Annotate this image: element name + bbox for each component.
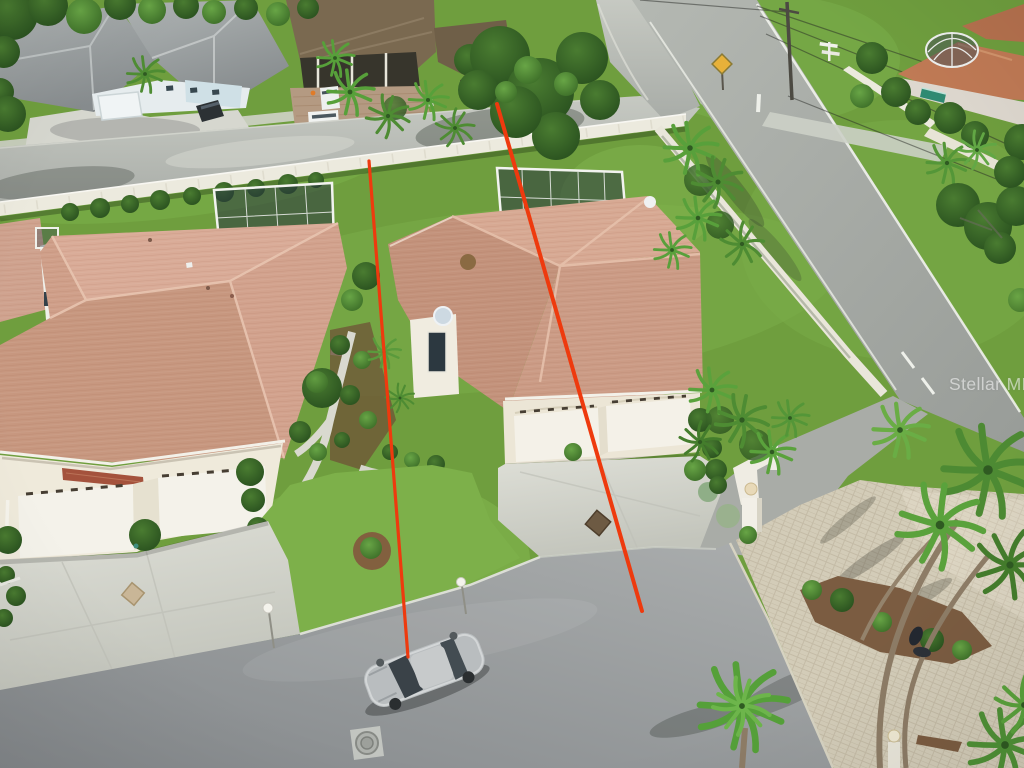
manhole-cover: [350, 726, 384, 760]
stellar-mls-watermark: Stellar MLS: [949, 374, 1024, 395]
white-van: [320, 86, 340, 110]
lamp-globe: [457, 578, 466, 587]
aerial-photo: Stellar MLS: [0, 0, 1024, 768]
monument-lamp: [745, 483, 757, 495]
screen-dome-enclosure: [926, 33, 978, 67]
entry-window: [428, 332, 446, 372]
lamp-globe: [888, 730, 900, 742]
aerial-photo-scene: [0, 0, 1024, 768]
right-garage-door-2: [606, 398, 692, 452]
brown-shrub: [460, 254, 476, 270]
lamp-globe: [263, 603, 273, 613]
patio-umbrella: [434, 307, 452, 325]
left-garage-door-1: [18, 484, 134, 558]
